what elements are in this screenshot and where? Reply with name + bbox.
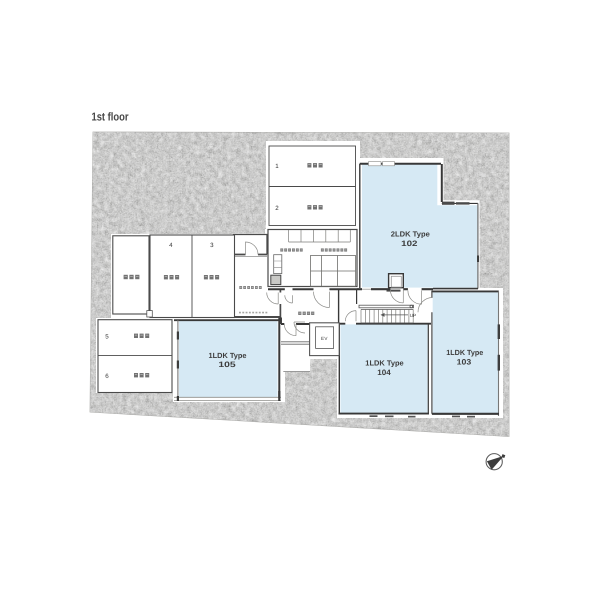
svg-text:2LDK Type: 2LDK Type [391,230,430,239]
svg-text:5: 5 [105,334,109,341]
svg-text:2: 2 [275,205,279,212]
svg-text:4: 4 [169,242,173,249]
svg-text:EV: EV [321,336,328,341]
svg-text:3: 3 [210,242,214,249]
svg-text:6: 6 [105,373,109,380]
svg-text:1st floor: 1st floor [92,112,129,124]
svg-text:1LDK Type: 1LDK Type [446,348,483,357]
svg-text:105: 105 [218,360,236,369]
svg-text:103: 103 [457,358,472,367]
svg-text:1LDK Type: 1LDK Type [365,358,403,367]
svg-text:1: 1 [275,163,279,170]
svg-text:1LDK Type: 1LDK Type [209,351,247,360]
svg-text:104: 104 [377,368,391,377]
svg-text:UP: UP [410,313,416,318]
svg-text:102: 102 [401,239,418,248]
